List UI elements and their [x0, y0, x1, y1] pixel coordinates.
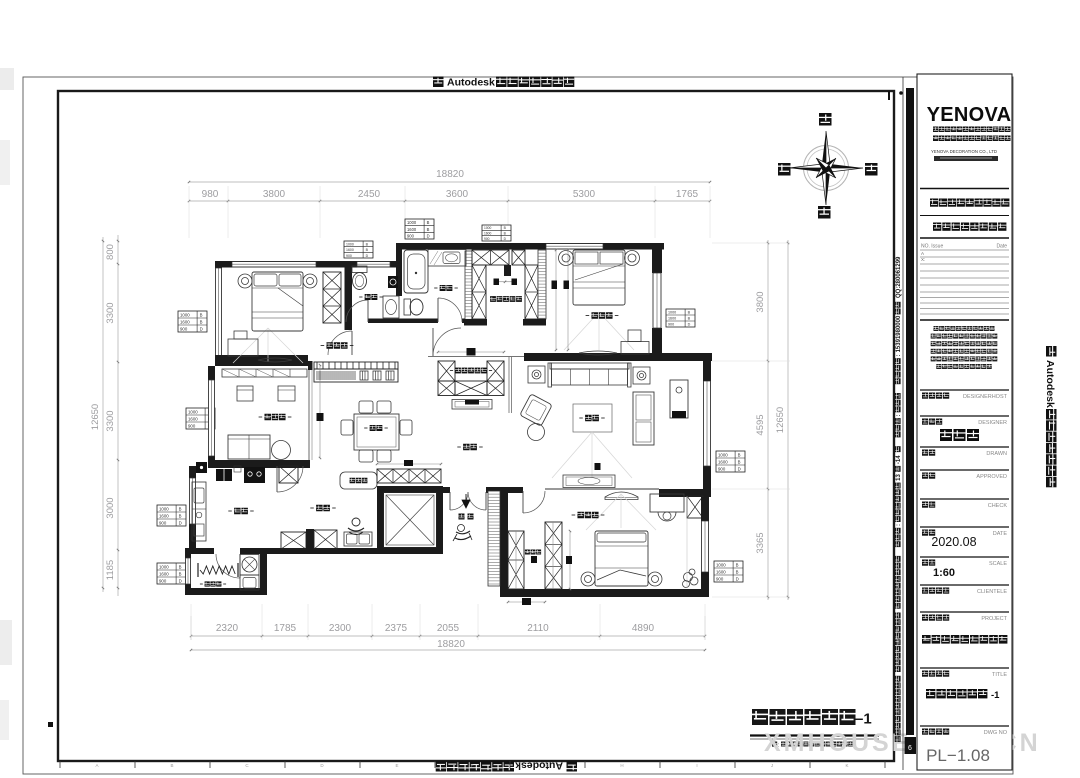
svg-text:SCALE: SCALE	[989, 561, 1007, 567]
svg-text:DESIGNER: DESIGNER	[978, 420, 1007, 426]
svg-text:900: 900	[718, 467, 726, 472]
svg-text:G: G	[545, 763, 549, 768]
svg-text:900: 900	[716, 577, 724, 582]
svg-text:4890: 4890	[632, 623, 655, 634]
svg-text:900: 900	[180, 327, 188, 332]
svg-text:PROJECT: PROJECT	[981, 616, 1007, 622]
svg-text:B: B	[179, 565, 182, 570]
svg-text:1600: 1600	[159, 514, 169, 519]
svg-text:4595: 4595	[755, 414, 766, 435]
svg-text:800: 800	[105, 244, 116, 260]
svg-text:1185: 1185	[105, 560, 116, 580]
svg-text:D: D	[427, 234, 430, 239]
svg-text:3800: 3800	[263, 189, 286, 200]
svg-text:1785: 1785	[274, 623, 297, 634]
svg-text:900: 900	[407, 234, 415, 239]
svg-text:5300: 5300	[573, 189, 596, 200]
svg-text:DRAWN: DRAWN	[986, 451, 1007, 457]
svg-text:B: B	[427, 227, 430, 232]
svg-text:6: 6	[908, 745, 912, 752]
svg-text:900: 900	[159, 521, 167, 526]
svg-text:DESIGNERHOST: DESIGNERHOST	[963, 394, 1008, 400]
svg-text:12650: 12650	[90, 404, 101, 430]
svg-text:1000: 1000	[716, 563, 726, 568]
svg-text:1000: 1000	[346, 242, 354, 246]
svg-text:D: D	[736, 577, 739, 582]
svg-text:1000: 1000	[668, 311, 676, 315]
svg-text:D: D	[179, 579, 182, 584]
svg-text:1000: 1000	[407, 220, 417, 225]
svg-text:B: B	[179, 514, 182, 519]
svg-text:B: B	[170, 763, 173, 768]
svg-text:B: B	[736, 563, 739, 568]
svg-text:B: B	[179, 507, 182, 512]
svg-text:3800: 3800	[755, 291, 766, 312]
svg-text:18820: 18820	[436, 169, 464, 180]
svg-text:1765: 1765	[676, 189, 699, 200]
svg-text:12650: 12650	[775, 407, 786, 433]
svg-text:–1: –1	[855, 711, 872, 728]
svg-text:2020.08: 2020.08	[931, 535, 976, 549]
svg-text::: :	[896, 414, 902, 416]
svg-text:1600: 1600	[346, 248, 354, 252]
svg-text:1600: 1600	[180, 320, 190, 325]
svg-text:Date: Date	[996, 244, 1007, 250]
svg-text:1600: 1600	[668, 317, 676, 321]
svg-text:900: 900	[346, 254, 352, 258]
svg-text:900: 900	[159, 579, 167, 584]
svg-text:H: H	[620, 763, 623, 768]
svg-text:I: I	[696, 763, 697, 768]
svg-text:CLIENTELE: CLIENTELE	[977, 589, 1007, 595]
svg-text:1000: 1000	[188, 410, 198, 415]
svg-text:B: B	[200, 320, 203, 325]
svg-text:3365: 3365	[755, 532, 766, 553]
svg-text:CHECK: CHECK	[988, 503, 1008, 509]
svg-text:3600: 3600	[446, 189, 469, 200]
svg-text:DWG NO: DWG NO	[984, 730, 1008, 736]
svg-text:2055: 2055	[437, 623, 460, 634]
svg-text:3000: 3000	[105, 497, 116, 518]
svg-text:1600: 1600	[716, 570, 726, 575]
svg-text:900: 900	[484, 237, 490, 241]
svg-text:YENOVA DECORATION CO., LTD: YENOVA DECORATION CO., LTD	[931, 149, 997, 154]
svg-text:NO. Issue: NO. Issue	[921, 244, 943, 250]
svg-text:PL−1.08: PL−1.08	[926, 746, 990, 765]
svg-text:2375: 2375	[385, 623, 408, 634]
svg-text:1600: 1600	[718, 460, 728, 465]
svg-text:D: D	[738, 467, 741, 472]
svg-text:E: E	[395, 763, 398, 768]
svg-text:1000: 1000	[718, 453, 728, 458]
svg-text:1000: 1000	[484, 226, 492, 230]
svg-text:1600: 1600	[159, 572, 169, 577]
svg-text:15391980000: 15391980000	[896, 315, 902, 352]
svg-text:18820: 18820	[437, 639, 465, 650]
svg-text:900: 900	[668, 323, 674, 327]
svg-text:B: B	[738, 460, 741, 465]
svg-text:980: 980	[202, 189, 219, 200]
svg-text::: :	[896, 354, 902, 356]
svg-text:YENOVA: YENOVA	[927, 104, 1012, 126]
svg-text:1:60: 1:60	[933, 567, 955, 579]
svg-text:J: J	[771, 763, 773, 768]
svg-text:DATE: DATE	[993, 531, 1008, 537]
svg-text:1000: 1000	[159, 507, 169, 512]
svg-text:1000: 1000	[180, 313, 190, 318]
svg-text:2300: 2300	[329, 623, 352, 634]
svg-text:X:: X:	[921, 257, 925, 262]
svg-text:Autodesk: Autodesk	[1044, 360, 1056, 408]
svg-text:B: B	[738, 453, 741, 458]
svg-text:D: D	[200, 327, 203, 332]
svg-text:1000: 1000	[159, 565, 169, 570]
svg-text:2110: 2110	[527, 623, 549, 634]
svg-text::: :	[896, 524, 902, 526]
svg-text:B: B	[200, 313, 203, 318]
svg-text:-14: -14	[896, 455, 902, 464]
svg-text:B: B	[427, 220, 430, 225]
svg-text:D: D	[179, 521, 182, 526]
svg-text:A: A	[921, 251, 924, 256]
svg-text:3300: 3300	[105, 302, 116, 323]
svg-text:2450: 2450	[358, 189, 381, 200]
svg-text:1600: 1600	[188, 417, 198, 422]
svg-text:-1: -1	[991, 690, 1000, 701]
svg-text:Autodesk: Autodesk	[447, 77, 495, 89]
svg-text:TITLE: TITLE	[992, 672, 1007, 678]
svg-text:A: A	[95, 763, 98, 768]
svg-text:3300: 3300	[105, 410, 116, 431]
svg-text:1600: 1600	[484, 232, 492, 236]
svg-text:B: B	[179, 572, 182, 577]
svg-text:QQ:280061299: QQ:280061299	[896, 256, 902, 298]
svg-text:B: B	[736, 570, 739, 575]
svg-text:1600: 1600	[407, 227, 417, 232]
svg-text:F: F	[471, 763, 474, 768]
svg-text:13: 13	[896, 473, 902, 480]
svg-text:900: 900	[188, 424, 196, 429]
svg-text:Autodesk: Autodesk	[515, 760, 563, 772]
svg-text:K: K	[845, 763, 848, 768]
svg-text:2320: 2320	[216, 623, 239, 634]
svg-text:D: D	[688, 323, 691, 327]
svg-text:APPROVED: APPROVED	[976, 474, 1007, 480]
